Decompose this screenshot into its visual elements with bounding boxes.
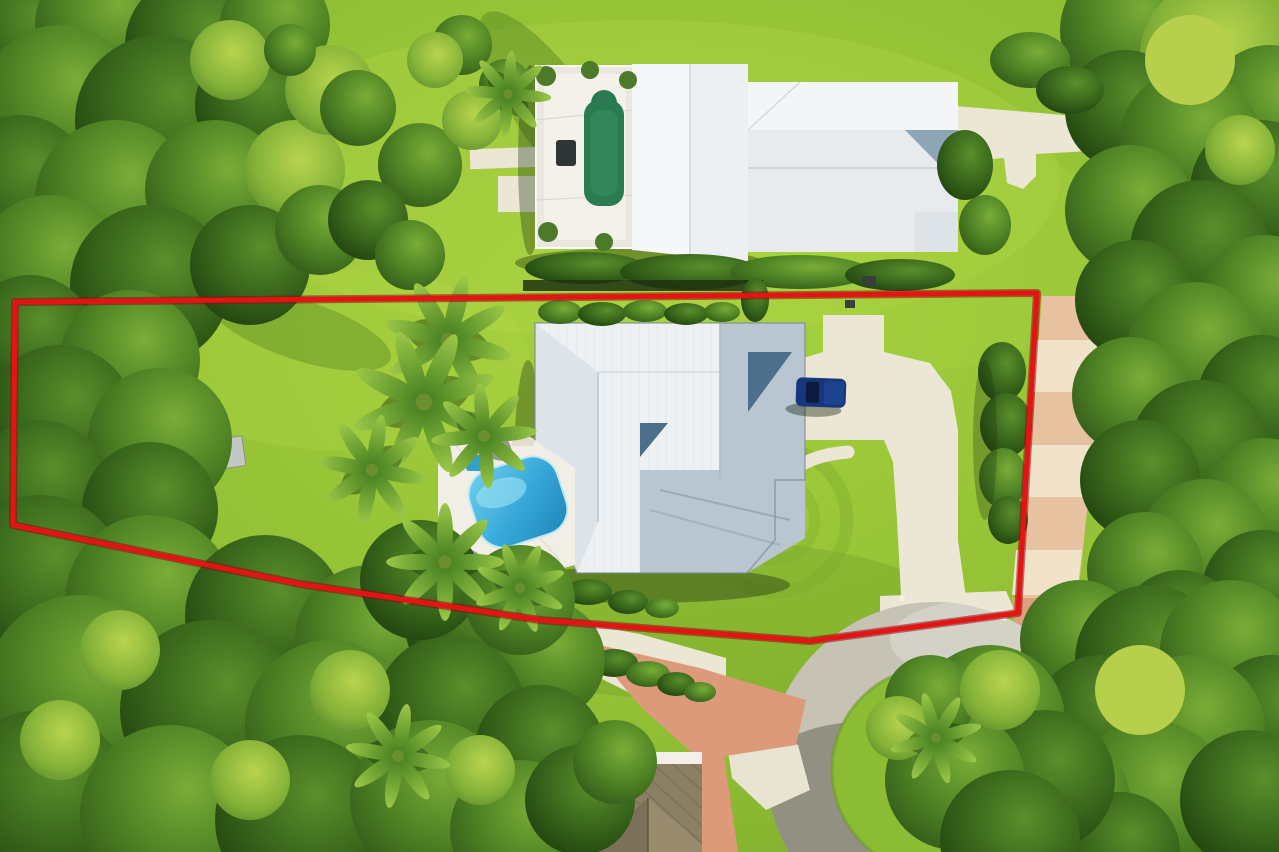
patio-furniture [556, 140, 576, 166]
roof-east-face [690, 64, 748, 262]
equipment [845, 300, 855, 308]
hedge-shadow [973, 360, 997, 520]
neighbor-top-house [515, 61, 958, 278]
bin [862, 276, 876, 286]
aerial-photo [0, 0, 1279, 852]
fence [523, 280, 763, 291]
post [899, 595, 905, 601]
garage-wing [915, 212, 958, 252]
truck-bed [824, 381, 845, 405]
roof-east-block [720, 323, 805, 480]
truck-cab [806, 382, 820, 403]
